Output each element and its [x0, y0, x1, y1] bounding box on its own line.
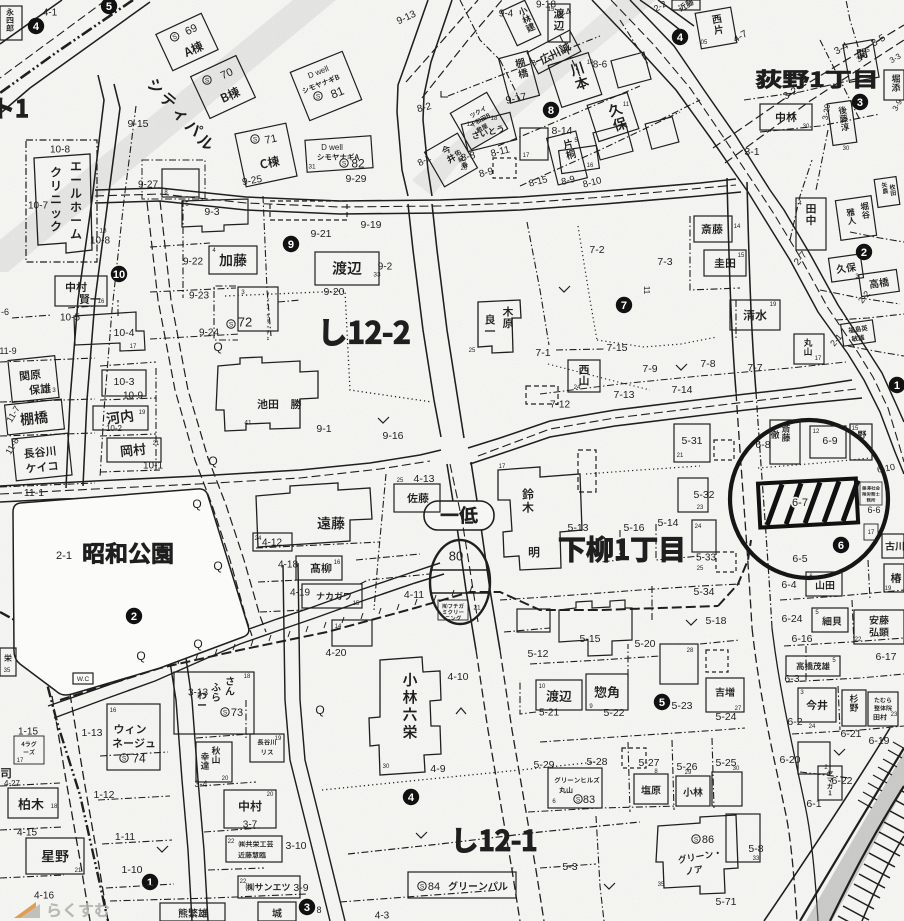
svg-text:10-4: 10-4 [113, 327, 134, 339]
svg-text:17: 17 [499, 464, 506, 470]
svg-text:4: 4 [408, 792, 415, 804]
svg-text:33: 33 [753, 856, 760, 862]
svg-text:25: 25 [397, 478, 404, 484]
svg-text:20: 20 [222, 776, 229, 782]
svg-text:41: 41 [244, 419, 252, 426]
svg-text:2: 2 [861, 247, 867, 259]
svg-text:S: S [229, 321, 234, 328]
svg-text:18: 18 [51, 804, 58, 810]
svg-text:5-12: 5-12 [527, 648, 548, 660]
svg-text:22: 22 [855, 637, 862, 643]
svg-text:83: 83 [583, 794, 595, 806]
svg-text:S: S [205, 77, 210, 84]
svg-text:S: S [694, 836, 699, 843]
svg-text:10: 10 [539, 684, 546, 690]
svg-text:2: 2 [131, 611, 137, 623]
svg-text:7-15: 7-15 [606, 342, 627, 354]
svg-text:5-32: 5-32 [693, 489, 714, 501]
svg-text:18: 18 [244, 674, 251, 680]
svg-text:24: 24 [574, 385, 581, 391]
svg-text:10-5: 10-5 [60, 313, 80, 324]
svg-text:3: 3 [304, 902, 310, 914]
svg-text:9: 9 [288, 239, 294, 251]
svg-text:6-6: 6-6 [867, 505, 880, 515]
svg-text:1: 1 [894, 380, 900, 392]
svg-text:9-15: 9-15 [127, 118, 148, 130]
svg-text:19: 19 [275, 736, 282, 742]
svg-text:9-27: 9-27 [138, 180, 158, 191]
svg-text:W.C: W.C [77, 676, 90, 683]
svg-text:14: 14 [335, 624, 342, 630]
svg-text:10: 10 [113, 269, 125, 281]
svg-text:S: S [223, 709, 228, 716]
svg-text:5-8: 5-8 [748, 843, 763, 855]
svg-text:6-7: 6-7 [792, 497, 808, 509]
svg-text:5: 5 [106, 1, 112, 13]
svg-text:10-2: 10-2 [106, 424, 123, 433]
svg-text:35: 35 [4, 668, 11, 674]
svg-text:6-3: 6-3 [784, 673, 799, 685]
svg-text:9-16: 9-16 [382, 430, 403, 442]
svg-text:16: 16 [587, 163, 594, 169]
svg-text:6-17: 6-17 [875, 651, 896, 663]
svg-text:S: S [316, 93, 321, 100]
svg-text:9-23: 9-23 [189, 291, 209, 302]
svg-text:7-2: 7-2 [589, 244, 604, 256]
svg-text:5-34: 5-34 [693, 586, 714, 598]
svg-text:20: 20 [267, 792, 274, 798]
svg-text:9-21: 9-21 [310, 228, 331, 240]
svg-text:17: 17 [130, 344, 137, 350]
svg-text:5-27: 5-27 [638, 757, 659, 769]
svg-text:1-13: 1-13 [81, 727, 102, 739]
svg-text:23: 23 [697, 505, 704, 511]
svg-text:30: 30 [383, 764, 390, 770]
svg-text:9-1: 9-1 [316, 423, 331, 435]
svg-text:4-3: 4-3 [375, 911, 390, 921]
svg-text:7-1: 7-1 [535, 347, 550, 359]
svg-text:11: 11 [623, 102, 630, 108]
svg-text:21: 21 [677, 453, 684, 459]
svg-text:10-8: 10-8 [90, 236, 110, 247]
svg-text:Q: Q [315, 703, 324, 717]
svg-text:7-14: 7-14 [671, 384, 692, 396]
svg-text:7-12: 7-12 [550, 400, 570, 411]
svg-text:6: 6 [838, 540, 844, 552]
svg-text:7-7: 7-7 [747, 362, 762, 374]
svg-text:16: 16 [98, 299, 105, 305]
svg-text:5: 5 [659, 697, 665, 709]
svg-text:10-7: 10-7 [28, 201, 48, 212]
svg-text:5-3: 5-3 [562, 861, 577, 873]
svg-text:8: 8 [548, 105, 554, 117]
svg-text:25: 25 [469, 348, 476, 354]
svg-text:19: 19 [139, 410, 146, 416]
svg-text:2-1: 2-1 [56, 550, 72, 562]
svg-text:7-8: 7-8 [700, 358, 715, 370]
svg-text:24: 24 [255, 536, 262, 542]
svg-text:17: 17 [815, 356, 822, 362]
svg-text:10-8: 10-8 [50, 145, 70, 156]
svg-text:4-18: 4-18 [278, 560, 298, 571]
svg-text:5-13: 5-13 [567, 522, 588, 534]
svg-text:14: 14 [734, 224, 741, 230]
svg-text:4-9: 4-9 [430, 763, 445, 775]
svg-text:82: 82 [351, 156, 365, 170]
svg-text:31: 31 [308, 163, 316, 170]
svg-text:73: 73 [231, 707, 243, 719]
svg-text:Q: Q [208, 454, 217, 468]
svg-text:3: 3 [857, 97, 863, 109]
svg-text:4: 4 [677, 32, 684, 44]
svg-text:1-11: 1-11 [115, 831, 135, 843]
svg-text:9-4: 9-4 [499, 9, 514, 20]
svg-text:71: 71 [264, 133, 278, 147]
svg-text:6-16: 6-16 [791, 633, 812, 645]
svg-text:-6: -6 [1, 307, 9, 317]
svg-text:11: 11 [642, 286, 651, 295]
svg-text:9-22: 9-22 [183, 257, 203, 268]
svg-text:86: 86 [702, 834, 714, 846]
svg-text:6-5: 6-5 [792, 553, 807, 565]
svg-text:8: 8 [316, 905, 321, 915]
svg-text:6-4: 6-4 [781, 579, 796, 591]
svg-text:12: 12 [813, 429, 820, 435]
svg-text:6-21: 6-21 [840, 728, 861, 740]
svg-text:6-9: 6-9 [822, 435, 837, 447]
svg-text:8-6: 8-6 [593, 60, 608, 71]
svg-text:11-1: 11-1 [24, 487, 44, 499]
svg-text:3-13: 3-13 [188, 688, 208, 699]
svg-text:05: 05 [701, 40, 708, 46]
svg-text:6-19: 6-19 [868, 735, 889, 747]
svg-text:9-19: 9-19 [360, 219, 381, 231]
svg-text:S: S [253, 136, 258, 143]
svg-text:6-2: 6-2 [787, 716, 802, 728]
svg-text:Q: Q [192, 497, 201, 511]
svg-text:D well: D well [321, 143, 343, 152]
svg-text:5-33: 5-33 [696, 553, 716, 564]
svg-text:5-23: 5-23 [671, 700, 692, 712]
svg-text:3-4: 3-4 [194, 779, 207, 789]
svg-text:6-24: 6-24 [781, 613, 802, 625]
svg-text:9-18: 9-18 [536, 0, 556, 11]
svg-text:Q: Q [213, 559, 222, 573]
svg-text:4-1: 4-1 [43, 8, 58, 19]
svg-text:5-18: 5-18 [705, 615, 726, 627]
svg-text:17: 17 [17, 758, 24, 764]
svg-text:5-22: 5-22 [603, 707, 624, 719]
svg-text:5-28: 5-28 [586, 756, 607, 768]
svg-text:19: 19 [770, 302, 777, 308]
svg-text:4: 4 [33, 21, 40, 33]
svg-text:3-1: 3-1 [744, 146, 759, 158]
svg-text:5-71: 5-71 [715, 896, 736, 908]
svg-text:3-9: 3-9 [293, 882, 308, 894]
svg-text:1-10: 1-10 [121, 864, 142, 876]
svg-text:21: 21 [75, 868, 82, 874]
svg-text:4-27: 4-27 [4, 779, 21, 788]
svg-text:21: 21 [473, 604, 481, 611]
svg-text:5-29: 5-29 [533, 759, 554, 771]
svg-text:30: 30 [733, 766, 740, 772]
svg-text:29: 29 [685, 770, 692, 776]
svg-text:5-21: 5-21 [539, 708, 559, 719]
svg-text:5-31: 5-31 [681, 435, 702, 447]
svg-text:16: 16 [110, 708, 117, 714]
svg-text:7-13: 7-13 [613, 389, 634, 401]
svg-text:13: 13 [99, 227, 107, 234]
svg-text:15: 15 [852, 426, 859, 432]
svg-text:22: 22 [228, 839, 235, 845]
svg-text:7-9: 7-9 [642, 363, 657, 375]
svg-text:15: 15 [353, 601, 360, 607]
svg-text:S: S [420, 883, 425, 890]
svg-text:5-14: 5-14 [657, 517, 678, 529]
svg-text:5-16: 5-16 [623, 522, 644, 534]
svg-text:72: 72 [238, 315, 252, 330]
svg-text:9-3: 9-3 [204, 206, 219, 218]
svg-text:35: 35 [658, 882, 665, 888]
svg-text:4-11: 4-11 [404, 589, 424, 601]
svg-text:17: 17 [523, 153, 530, 159]
svg-text:S: S [122, 755, 127, 762]
svg-text:5-15: 5-15 [579, 633, 600, 645]
svg-text:7: 7 [621, 300, 627, 312]
svg-text:30: 30 [843, 146, 850, 152]
svg-text:7-3: 7-3 [657, 256, 672, 268]
svg-text:17: 17 [868, 530, 875, 536]
svg-text:23: 23 [891, 712, 898, 718]
svg-text:5-24: 5-24 [715, 711, 736, 723]
svg-text:Q: Q [136, 649, 145, 663]
svg-text:4-19: 4-19 [290, 588, 310, 599]
svg-text:22: 22 [240, 879, 247, 885]
svg-text:15: 15 [738, 253, 745, 259]
svg-text:80: 80 [449, 549, 463, 564]
svg-text:10-9: 10-9 [123, 391, 143, 402]
svg-text:6-1: 6-1 [806, 798, 821, 810]
svg-text:Q: Q [213, 340, 222, 354]
svg-text:9-24: 9-24 [199, 328, 219, 339]
svg-text:10-3: 10-3 [113, 376, 134, 388]
svg-text:4-16: 4-16 [34, 891, 54, 902]
svg-text:1: 1 [147, 877, 153, 889]
svg-text:20: 20 [461, 166, 468, 172]
svg-text:24: 24 [695, 524, 702, 530]
svg-text:84: 84 [428, 881, 440, 893]
svg-text:25: 25 [697, 566, 704, 572]
svg-text:4-13: 4-13 [413, 473, 434, 485]
svg-text:16: 16 [334, 560, 341, 566]
svg-text:4-20: 4-20 [325, 647, 346, 659]
svg-text:4-10: 4-10 [447, 671, 468, 683]
svg-text:9-29: 9-29 [345, 173, 366, 185]
svg-text:S: S [342, 160, 347, 167]
svg-text:6-8: 6-8 [755, 439, 770, 451]
svg-text:3-10: 3-10 [285, 840, 306, 852]
svg-text:33: 33 [373, 271, 381, 278]
svg-text:Q: Q [193, 637, 202, 651]
svg-text:5-20: 5-20 [634, 638, 655, 650]
svg-text:24: 24 [809, 724, 816, 730]
svg-text:S: S [576, 796, 581, 803]
svg-text:28: 28 [687, 648, 694, 654]
svg-text:11-9: 11-9 [0, 346, 17, 356]
svg-text:18: 18 [491, 116, 498, 122]
